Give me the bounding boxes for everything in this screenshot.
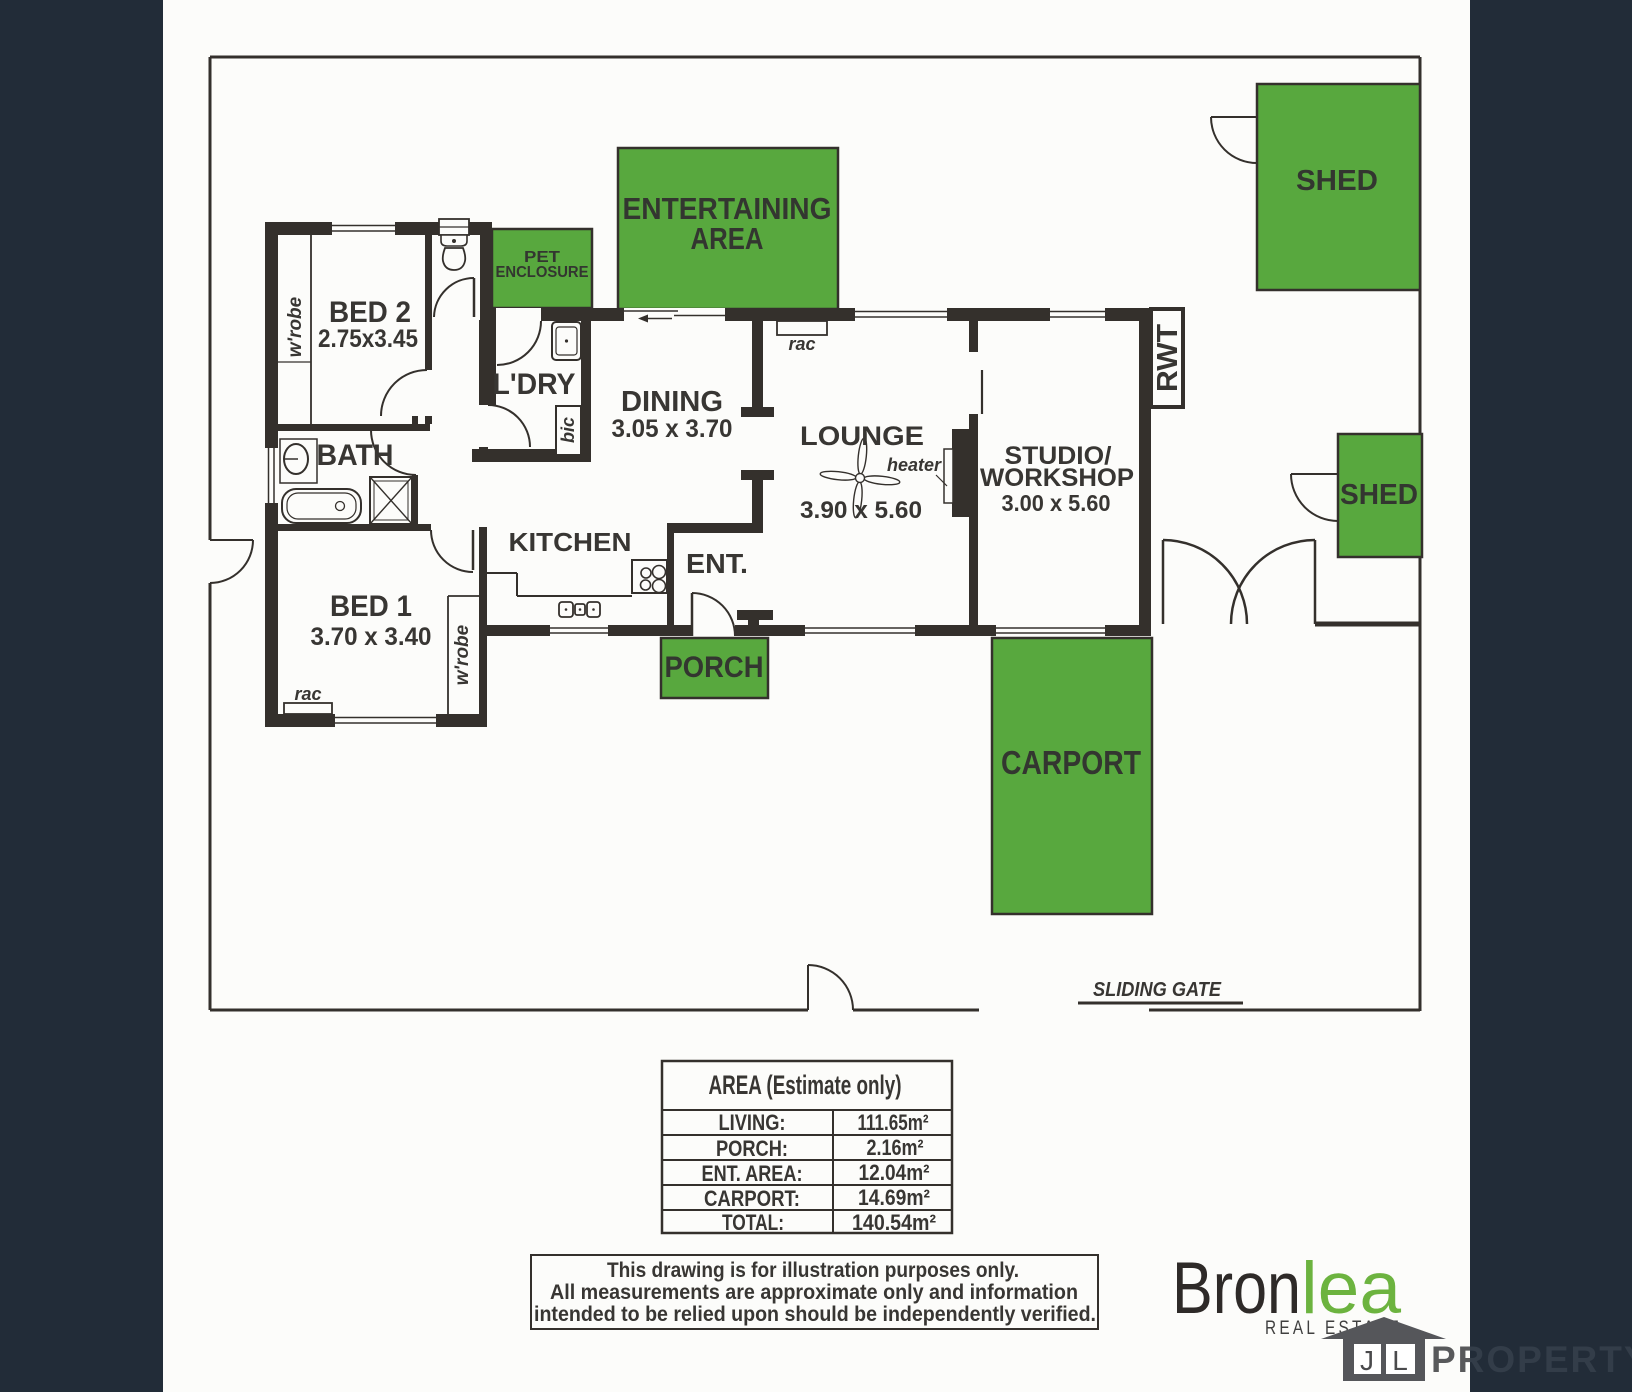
svg-text:2.16m²: 2.16m² (867, 1135, 924, 1160)
svg-text:L'DRY: L'DRY (493, 368, 576, 401)
svg-text:Bron: Bron (1172, 1248, 1301, 1329)
svg-text:rac: rac (788, 334, 815, 354)
svg-text:PORCH: PORCH (665, 651, 764, 684)
svg-text:3.05 x 3.70: 3.05 x 3.70 (612, 415, 733, 443)
svg-text:DINING: DINING (621, 386, 723, 418)
svg-text:SHED: SHED (1340, 479, 1418, 511)
svg-text:AREA (Estimate only): AREA (Estimate only) (709, 1070, 902, 1100)
svg-text:12.04m²: 12.04m² (859, 1160, 930, 1185)
svg-text:heater: heater (887, 455, 942, 475)
svg-text:rac: rac (294, 684, 321, 704)
svg-text:ENCLOSURE: ENCLOSURE (496, 264, 589, 281)
svg-text:AREA: AREA (691, 221, 764, 256)
svg-text:140.54m²: 140.54m² (852, 1210, 936, 1235)
svg-text:SLIDING GATE: SLIDING GATE (1093, 979, 1222, 1001)
svg-text:L: L (1392, 1345, 1408, 1376)
svg-text:SHED: SHED (1296, 165, 1378, 197)
svg-text:CARPORT:: CARPORT: (704, 1186, 800, 1211)
svg-text:TOTAL:: TOTAL: (722, 1210, 784, 1235)
svg-text:This drawing is for illustrati: This drawing is for illustration purpose… (607, 1259, 1019, 1282)
svg-text:intended to be relied upon sho: intended to be relied upon should be ind… (534, 1303, 1096, 1326)
svg-text:w'robe: w'robe (285, 296, 306, 357)
svg-text:KITCHEN: KITCHEN (509, 527, 632, 557)
svg-text:14.69m²: 14.69m² (858, 1185, 930, 1210)
svg-text:w'robe: w'robe (452, 624, 473, 685)
svg-text:J: J (1360, 1345, 1374, 1376)
svg-text:ENT. AREA:: ENT. AREA: (702, 1161, 803, 1186)
svg-text:3.90 x 5.60: 3.90 x 5.60 (800, 497, 922, 524)
svg-text:BATH: BATH (317, 439, 394, 472)
svg-text:PORCH:: PORCH: (716, 1136, 788, 1161)
svg-text:bic: bic (558, 417, 578, 443)
svg-text:RWT: RWT (1152, 324, 1184, 392)
svg-text:ENT.: ENT. (686, 548, 748, 579)
svg-text:3.00 x 5.60: 3.00 x 5.60 (1002, 490, 1111, 516)
svg-text:2.75x3.45: 2.75x3.45 (318, 325, 418, 353)
svg-text:WORKSHOP: WORKSHOP (980, 464, 1134, 492)
svg-text:3.70 x 3.40: 3.70 x 3.40 (311, 623, 432, 651)
svg-text:All measurements are approxima: All measurements are approximate only an… (550, 1281, 1078, 1304)
svg-text:LOUNGE: LOUNGE (800, 421, 924, 451)
svg-text:CARPORT: CARPORT (1001, 744, 1141, 781)
svg-text:LIVING:: LIVING: (719, 1110, 786, 1135)
svg-text:lea: lea (1301, 1248, 1401, 1329)
svg-text:BED 1: BED 1 (330, 590, 412, 623)
svg-text:111.65m²: 111.65m² (858, 1110, 929, 1135)
